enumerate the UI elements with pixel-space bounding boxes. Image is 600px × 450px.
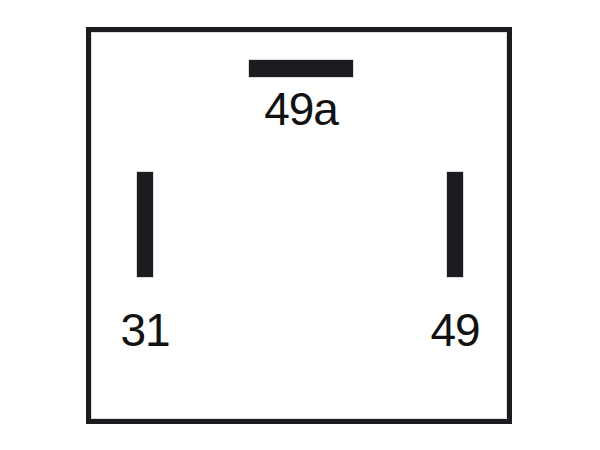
terminal-31-label: 31: [95, 307, 195, 353]
terminal-49a-label: 49a: [241, 86, 361, 132]
relay-pinout-diagram: 49a 31 49: [0, 0, 600, 450]
terminal-49-label: 49: [405, 307, 505, 353]
terminal-31-pin: [137, 172, 153, 277]
terminal-49a-pin: [249, 60, 353, 77]
terminal-49-pin: [447, 172, 463, 277]
